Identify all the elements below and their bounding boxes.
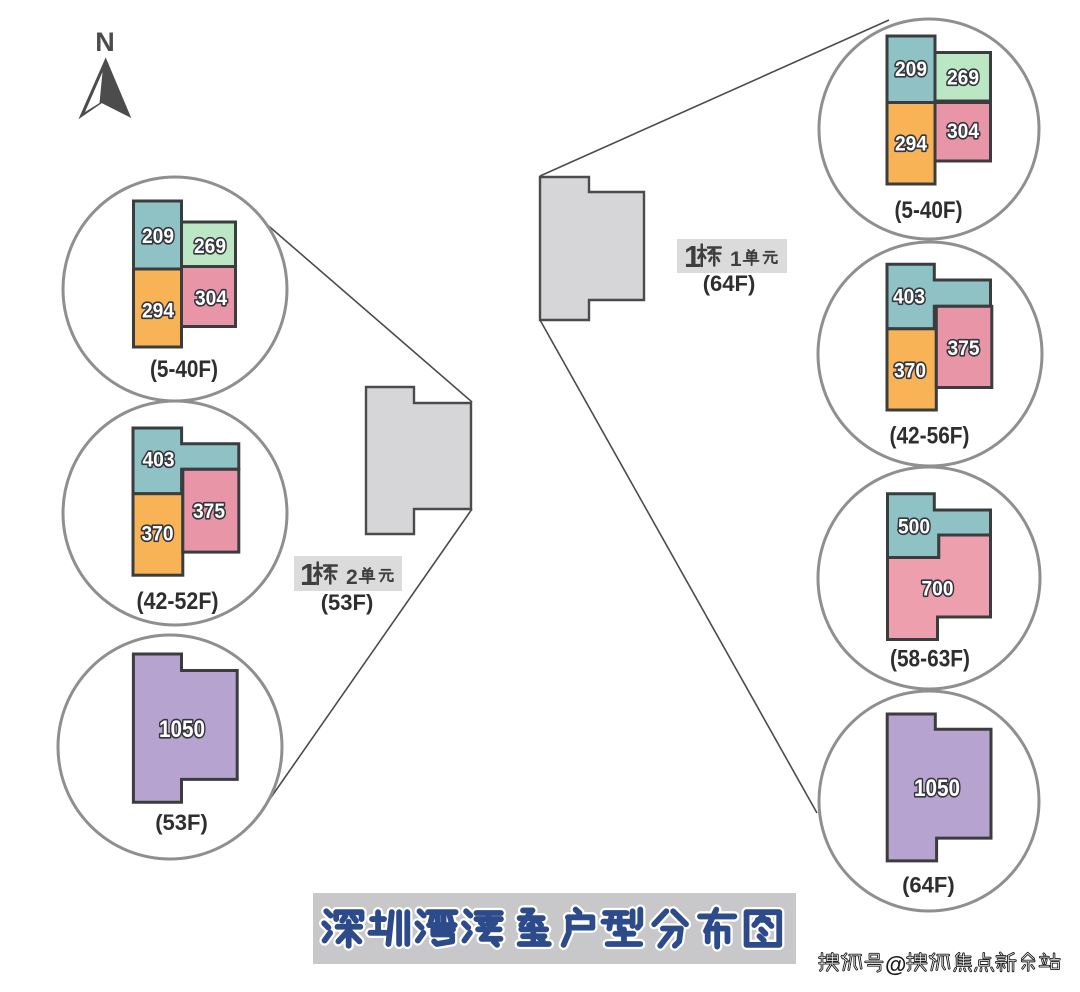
svg-text:(42-52F): (42-52F) xyxy=(137,588,219,615)
svg-text:370: 370 xyxy=(894,360,926,383)
svg-text:2: 2 xyxy=(346,566,358,589)
svg-text:294: 294 xyxy=(895,133,927,156)
svg-text:@: @ xyxy=(885,952,906,977)
svg-text:1050: 1050 xyxy=(159,716,205,743)
svg-text:209: 209 xyxy=(142,225,174,248)
svg-text:(64F): (64F) xyxy=(703,271,756,296)
svg-text:403: 403 xyxy=(143,449,175,472)
svg-text:N: N xyxy=(95,27,115,57)
svg-text:(64F): (64F) xyxy=(902,873,955,898)
svg-text:(58-63F): (58-63F) xyxy=(890,646,970,673)
svg-text:370: 370 xyxy=(142,523,174,546)
svg-text:1: 1 xyxy=(730,248,742,271)
svg-text:269: 269 xyxy=(194,235,226,258)
svg-text:269: 269 xyxy=(947,67,979,90)
svg-text:700: 700 xyxy=(922,578,954,601)
svg-text:1050: 1050 xyxy=(914,775,960,802)
svg-text:(5-40F): (5-40F) xyxy=(895,197,963,224)
svg-text:294: 294 xyxy=(142,300,174,323)
svg-text:500: 500 xyxy=(898,516,930,539)
svg-text:209: 209 xyxy=(895,58,927,81)
svg-text:(53F): (53F) xyxy=(155,810,208,835)
svg-text:304: 304 xyxy=(947,120,979,143)
svg-text:(53F): (53F) xyxy=(321,590,374,615)
svg-text:304: 304 xyxy=(195,287,227,310)
svg-text:375: 375 xyxy=(948,337,980,360)
svg-text:403: 403 xyxy=(893,286,925,309)
svg-text:(5-40F): (5-40F) xyxy=(150,356,218,383)
svg-text:375: 375 xyxy=(193,500,225,523)
svg-text:(42-56F): (42-56F) xyxy=(890,423,970,450)
